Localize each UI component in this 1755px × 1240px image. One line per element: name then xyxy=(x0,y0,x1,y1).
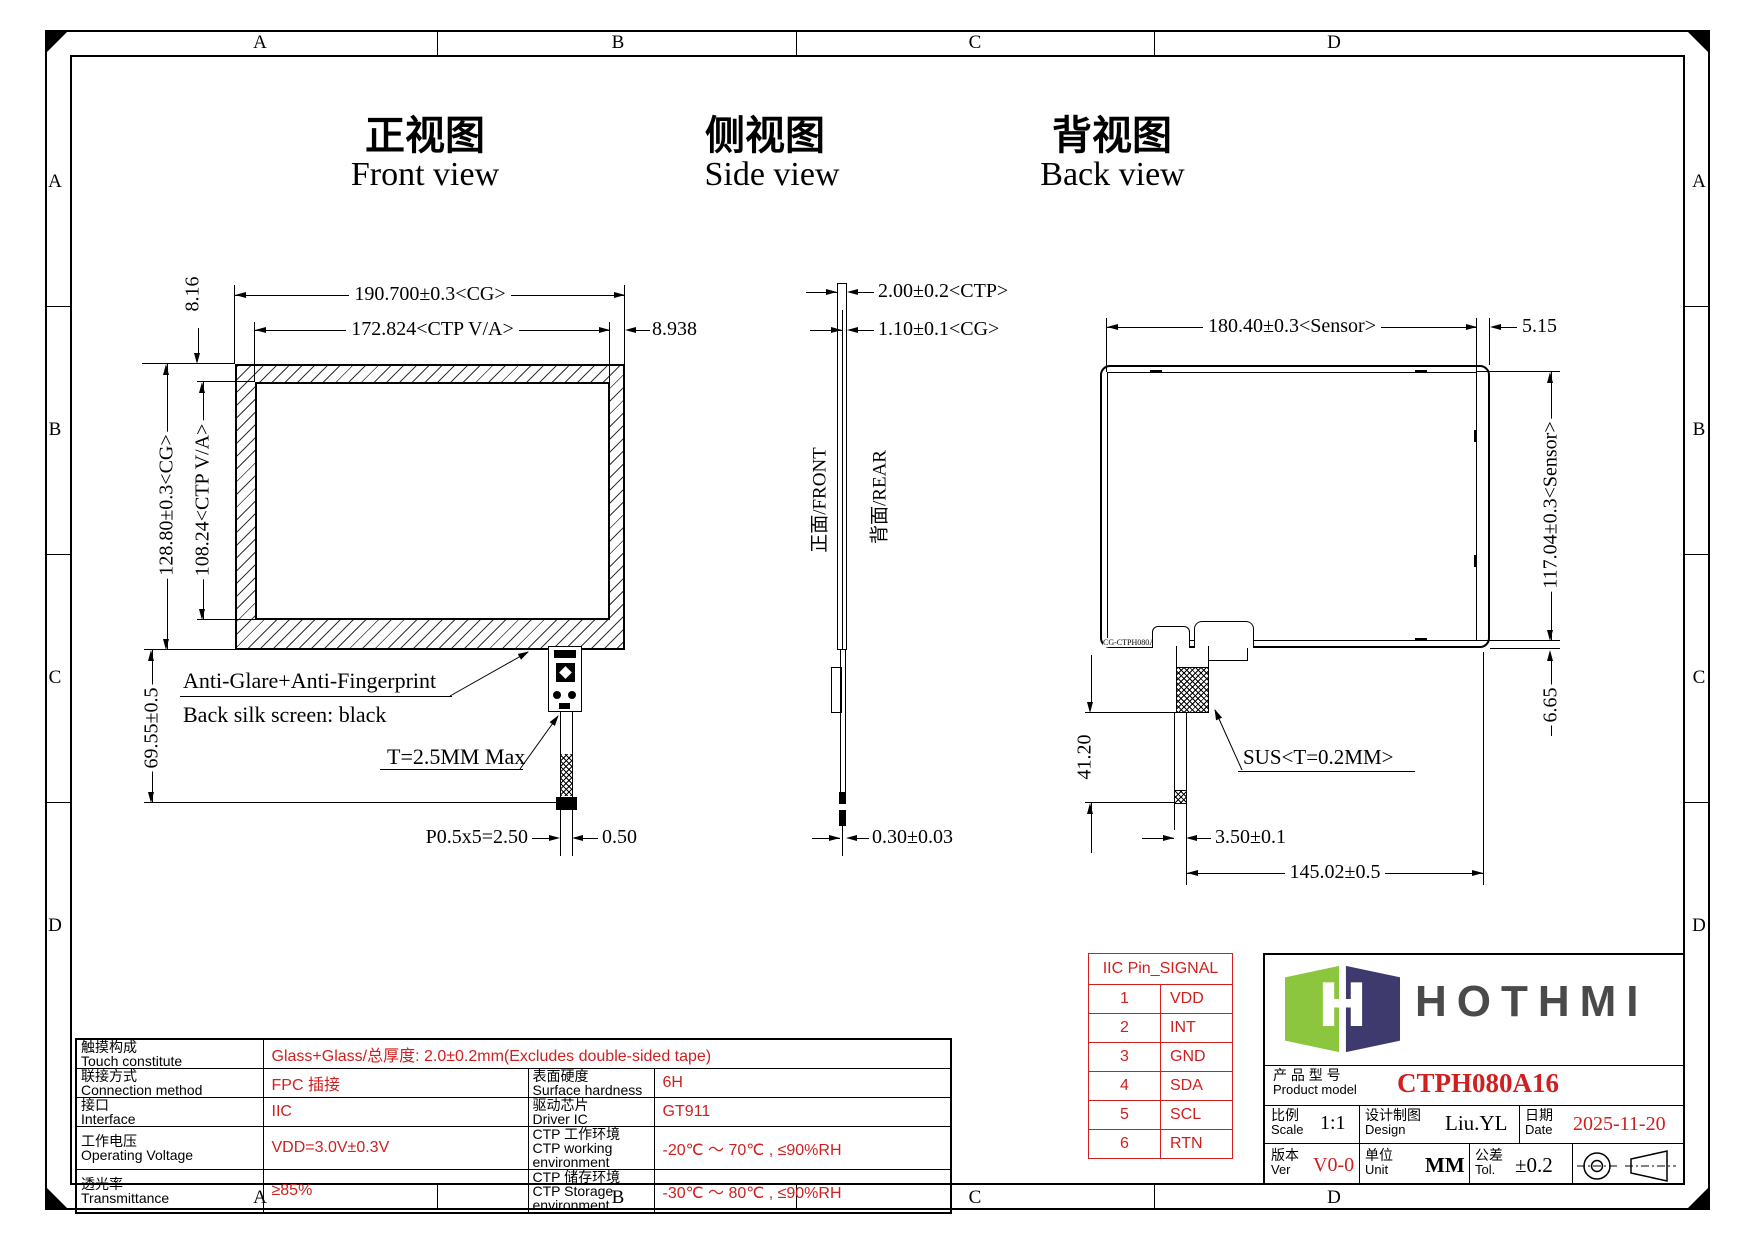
zone-letter: C xyxy=(1687,667,1711,689)
back-fpc-position: 145.02±0.5 xyxy=(1187,861,1483,884)
drawing-sheet: A B C D A B C D A B C D A B C D 正视图 Fron… xyxy=(0,0,1755,1240)
spec-value: ≥85% xyxy=(263,1170,528,1214)
zone-tick xyxy=(1154,30,1155,55)
unit-value: MM xyxy=(1425,1153,1465,1178)
front-va-width: 172.824<CTP V/A> xyxy=(255,318,610,341)
spec-value: IIC xyxy=(263,1098,528,1127)
ext-line xyxy=(1483,652,1484,885)
spec-value: -20℃ ～ 70℃ , ≤90%RH xyxy=(654,1127,951,1170)
spec-label: 触摸构成Touch constitute xyxy=(76,1039,263,1069)
pin-number: 3 xyxy=(1089,1043,1161,1072)
front-panel-active-area xyxy=(255,382,610,620)
arrowhead xyxy=(194,353,200,364)
arrowhead xyxy=(1547,650,1553,661)
leader-underline xyxy=(380,769,523,770)
connector-detail xyxy=(556,663,575,682)
zone-tick xyxy=(45,306,70,307)
table-row: 6RTN xyxy=(1089,1130,1233,1159)
spec-label: 表面硬度Surface hardness xyxy=(528,1069,654,1098)
zone-letter: D xyxy=(43,915,67,937)
dim-line xyxy=(1091,655,1092,702)
spec-value: 6H xyxy=(654,1069,951,1098)
design-label: 设计制图Design xyxy=(1365,1107,1421,1137)
back-tail-width: 3.50±0.1 xyxy=(1215,826,1286,849)
zone-tick xyxy=(45,802,70,803)
spec-label: 透光率Transmittance xyxy=(76,1170,263,1214)
front-offset: 0.50 xyxy=(602,826,637,849)
arrowhead xyxy=(199,382,205,393)
tol-value: ±0.2 xyxy=(1515,1153,1553,1178)
table-row: 联接方式Connection method FPC 插接 表面硬度Surface… xyxy=(76,1069,951,1098)
fpc-tail-texture xyxy=(561,754,572,796)
front-right-gap: 8.938 xyxy=(652,318,697,341)
fpc-neck-line xyxy=(1176,646,1177,668)
fpc-connector xyxy=(548,646,582,712)
front-note-thickness: T=2.5MM Max xyxy=(387,744,525,770)
arrowhead xyxy=(1490,324,1501,330)
logo-h-letter: H xyxy=(1317,971,1367,1041)
arrowhead xyxy=(148,792,154,803)
zone-letter: C xyxy=(43,667,67,689)
spec-label: CTP 储存环境CTP Storage environment xyxy=(528,1170,654,1214)
product-model-label: 产 品 型 号Product model xyxy=(1273,1067,1357,1097)
arrowhead xyxy=(572,835,583,841)
zone-letter: C xyxy=(960,32,990,54)
hothmi-logo-icon: H xyxy=(1285,965,1400,1053)
leader-underline xyxy=(180,696,452,697)
pin-number: 6 xyxy=(1089,1130,1161,1159)
zone-letter: D xyxy=(1687,915,1711,937)
fpc-neck-line xyxy=(1208,660,1248,661)
zone-tick xyxy=(1685,554,1710,555)
zone-letter: B xyxy=(603,32,633,54)
back-right-gap: 5.15 xyxy=(1522,315,1557,338)
fpc-neck-line xyxy=(1208,646,1209,668)
logo-wordmark: HOTHMI xyxy=(1415,977,1649,1027)
front-note-glare: Anti-Glare+Anti-Fingerprint xyxy=(183,668,436,694)
ext-line xyxy=(1490,648,1560,649)
pin-signal: VDD xyxy=(1161,985,1233,1014)
design-value: Liu.YL xyxy=(1445,1111,1507,1136)
pin-signal: RTN xyxy=(1161,1130,1233,1159)
zone-tick xyxy=(45,554,70,555)
title-block-line xyxy=(1519,1105,1520,1143)
side-cg-thickness: 1.10±0.1<CG> xyxy=(878,318,999,341)
spec-value: FPC 插接 xyxy=(263,1069,528,1098)
spec-value: VDD=3.0V±0.3V xyxy=(263,1127,528,1170)
scale-label: 比例Scale xyxy=(1271,1107,1304,1137)
back-tab xyxy=(1194,621,1254,648)
scale-value: 1:1 xyxy=(1320,1112,1346,1135)
sensor-tick xyxy=(1474,555,1476,567)
zone-letter: B xyxy=(43,419,67,441)
arrowhead xyxy=(831,327,842,333)
zone-tick xyxy=(796,30,797,55)
pin-signal: SCL xyxy=(1161,1101,1233,1130)
side-tail-line xyxy=(842,826,843,856)
ver-label: 版本Ver xyxy=(1271,1147,1299,1177)
connector-detail xyxy=(568,691,576,699)
side-layer-line xyxy=(842,310,843,650)
table-row: 5SCL xyxy=(1089,1101,1233,1130)
title-block-line xyxy=(1572,1143,1573,1183)
back-sensor-outline xyxy=(1107,372,1477,641)
spec-label: 工作电压Operating Voltage xyxy=(76,1127,263,1170)
spec-label: 接口Interface xyxy=(76,1098,263,1127)
leader-underline xyxy=(1238,771,1415,772)
back-view-title-cn: 背视图 xyxy=(1047,103,1177,161)
table-row: 接口Interface IIC 驱动芯片Driver IC GT911 xyxy=(76,1098,951,1127)
dim-line xyxy=(857,838,869,839)
side-ctp-thickness: 2.00±0.2<CTP> xyxy=(878,280,1008,303)
ver-value: V0-0 xyxy=(1313,1154,1354,1177)
back-sensor-width: 180.40±0.3<Sensor> xyxy=(1107,315,1477,338)
side-tail-line xyxy=(845,650,846,792)
title-block-line xyxy=(1359,1105,1360,1143)
front-view-title-en: Front view xyxy=(305,156,545,194)
connector-detail xyxy=(559,666,572,679)
zone-letter: A xyxy=(1687,171,1711,193)
spec-value: Glass+Glass/总厚度: 2.0±0.2mm(Excludes doub… xyxy=(263,1039,951,1069)
arrowhead xyxy=(847,327,858,333)
table-row: 4SDA xyxy=(1089,1072,1233,1101)
arrowhead xyxy=(1547,372,1553,383)
connector-detail xyxy=(554,650,576,658)
front-view-title-cn: 正视图 xyxy=(330,103,520,161)
dim-line xyxy=(858,292,874,293)
spec-table: 触摸构成Touch constitute Glass+Glass/总厚度: 2.… xyxy=(75,1038,952,1214)
tol-label: 公差Tol. xyxy=(1475,1147,1503,1177)
sensor-tick xyxy=(1415,638,1427,640)
dim-line xyxy=(858,330,874,331)
date-label: 日期Date xyxy=(1525,1107,1553,1137)
sensor-tick xyxy=(1150,370,1162,372)
title-block-line xyxy=(1265,1105,1683,1106)
ext-line xyxy=(1085,712,1176,713)
zone-letter: A xyxy=(245,32,275,54)
table-row: 1VDD xyxy=(1089,985,1233,1014)
pin-signal: SDA xyxy=(1161,1072,1233,1101)
pin-number: 2 xyxy=(1089,1014,1161,1043)
arrowhead xyxy=(1186,835,1197,841)
spec-label: CTP 工作环境CTP working environment xyxy=(528,1127,654,1170)
zone-letter: A xyxy=(43,171,67,193)
sus-stiffener xyxy=(1176,667,1209,713)
zone-tick xyxy=(1685,802,1710,803)
arrowhead xyxy=(1163,835,1174,841)
front-cg-width: 190.700±0.3<CG> xyxy=(235,283,625,306)
pin-signal: INT xyxy=(1161,1014,1233,1043)
fpc-tail-stiffener xyxy=(1174,790,1187,804)
arrowhead xyxy=(1087,803,1093,814)
dim-line xyxy=(583,838,598,839)
side-fpc-thickness: 0.30±0.03 xyxy=(872,826,953,849)
zone-tick xyxy=(1154,1185,1155,1210)
arrowhead xyxy=(148,650,154,661)
spec-value: -30℃ ～ 80℃ , ≤90%RH xyxy=(654,1170,951,1214)
ext-line xyxy=(197,381,255,382)
fpc-neck-line xyxy=(1247,648,1248,661)
pin-number: 4 xyxy=(1089,1072,1161,1101)
dim-line xyxy=(198,328,199,353)
side-tail-stiffener xyxy=(839,810,846,826)
table-row: 3GND xyxy=(1089,1043,1233,1072)
zone-letter: C xyxy=(960,1187,990,1209)
table-row: 透光率Transmittance ≥85% CTP 储存环境CTP Storag… xyxy=(76,1170,951,1214)
pin-signal: GND xyxy=(1161,1043,1233,1072)
product-model-value: CTPH080A16 xyxy=(1397,1068,1559,1099)
spec-value: GT911 xyxy=(654,1098,951,1127)
side-view-title-en: Side view xyxy=(677,156,867,194)
spec-label: 联接方式Connection method xyxy=(76,1069,263,1098)
zone-letter: D xyxy=(1319,1187,1349,1209)
spec-label: 驱动芯片Driver IC xyxy=(528,1098,654,1127)
dim-line xyxy=(532,838,549,839)
sensor-tick xyxy=(1415,370,1427,372)
connector-detail xyxy=(559,703,570,709)
side-tail-stiffener xyxy=(839,792,846,804)
iic-pin-table: IIC Pin_SIGNAL 1VDD 2INT 3GND 4SDA 5SCL … xyxy=(1088,953,1233,1159)
unit-label: 单位Unit xyxy=(1365,1147,1393,1177)
arrowhead xyxy=(163,639,169,650)
arrowhead xyxy=(847,289,858,295)
connector-detail xyxy=(553,691,561,699)
back-sus-note: SUS<T=0.2MM> xyxy=(1243,745,1393,770)
zone-tick xyxy=(437,30,438,55)
ext-line xyxy=(144,802,562,803)
ext-line xyxy=(144,649,235,650)
zone-letter: B xyxy=(1687,419,1711,441)
arrowhead xyxy=(1087,702,1093,713)
zone-tick xyxy=(1685,306,1710,307)
table-row: 工作电压Operating Voltage VDD=3.0V±0.3V CTP … xyxy=(76,1127,951,1170)
dim-line xyxy=(636,330,650,331)
side-view-title-cn: 侧视图 xyxy=(700,103,830,161)
title-block-line xyxy=(1359,1143,1360,1183)
table-row: 触摸构成Touch constitute Glass+Glass/总厚度: 2.… xyxy=(76,1039,951,1069)
back-tab xyxy=(1152,626,1190,648)
front-pitch: P0.5x5=2.50 xyxy=(356,826,528,849)
arrowhead xyxy=(549,835,560,841)
title-block-line xyxy=(1469,1143,1470,1183)
dim-line xyxy=(1501,327,1517,328)
front-note-silk: Back silk screen: black xyxy=(183,702,386,728)
pin-number: 5 xyxy=(1089,1101,1161,1130)
side-tail-line xyxy=(840,650,841,792)
ext-line xyxy=(1085,802,1174,803)
title-block-line xyxy=(1265,1065,1683,1066)
table-row: 2INT xyxy=(1089,1014,1233,1043)
back-view-title-en: Back view xyxy=(1000,156,1225,194)
arrowhead xyxy=(199,609,205,620)
pin-number: 1 xyxy=(1089,985,1161,1014)
fpc-tail-line xyxy=(1174,713,1175,830)
arrowhead xyxy=(829,835,840,841)
arrowhead xyxy=(1547,630,1553,641)
fpc-tail-stiffener xyxy=(556,797,577,810)
dim-line xyxy=(1197,838,1211,839)
ext-line xyxy=(197,619,255,620)
arrowhead xyxy=(846,835,857,841)
projection-symbol-icon xyxy=(1575,1148,1680,1184)
ext-line xyxy=(142,363,235,364)
title-block-line xyxy=(1265,1143,1683,1144)
iic-table-header: IIC Pin_SIGNAL xyxy=(1089,954,1233,985)
arrowhead xyxy=(826,289,837,295)
arrowhead xyxy=(163,364,169,375)
zone-letter: D xyxy=(1319,32,1349,54)
arrowhead xyxy=(625,327,636,333)
date-value: 2025-11-20 xyxy=(1573,1113,1666,1136)
title-block: H HOTHMI 产 品 型 号Product model CTPH080A16… xyxy=(1263,953,1685,1185)
sensor-tick xyxy=(1474,430,1476,442)
